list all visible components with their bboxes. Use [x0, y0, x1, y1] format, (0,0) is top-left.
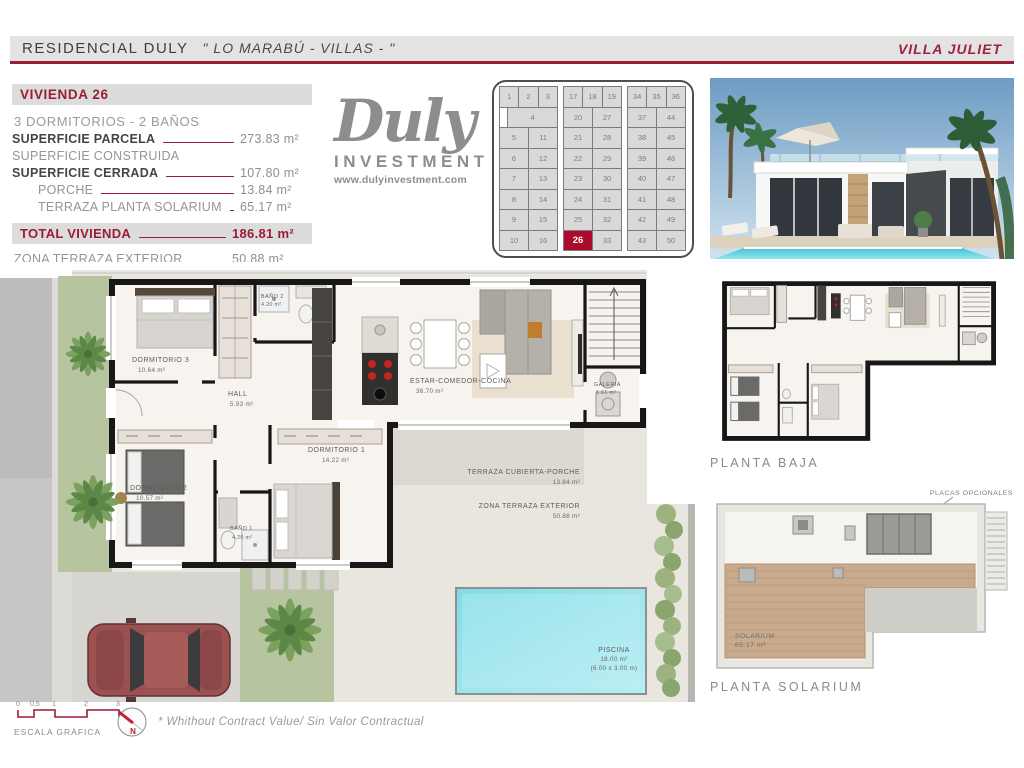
dims-piscina: (6.00 x 3.00 m): [591, 665, 638, 672]
plot-cell-41: 41: [627, 189, 657, 211]
plot-cell-7: 7: [499, 168, 529, 190]
plot-row: 2532: [564, 210, 622, 231]
roof-chimney: [739, 568, 755, 582]
plot-cell-35: 35: [646, 86, 666, 108]
plot-cell-28: 28: [592, 127, 622, 149]
plot-cell-44: 44: [656, 107, 686, 129]
plot-cell-50: 50: [656, 230, 686, 252]
plot-row: 2431: [564, 190, 622, 211]
plot-cell-5: 5: [499, 127, 529, 149]
plot-cell-6: 6: [499, 148, 529, 170]
plot-row: 713: [500, 169, 558, 190]
palm-tree: [66, 332, 111, 377]
plot-cell-27: 27: [592, 107, 622, 129]
dining-table: [411, 320, 470, 368]
surface-rows: SUPERFICIE PARCELA273.83 m²SUPERFICIE CO…: [12, 132, 312, 214]
kitchen-tall-units: [312, 288, 332, 420]
bedrooms-baths: 3 DORMITORIOS - 2 BAÑOS: [14, 114, 312, 129]
plot-cell-39: 39: [627, 148, 657, 170]
plot-cell-47: 47: [656, 168, 686, 190]
info-panel: VIVIENDA 26 3 DORMITORIOS - 2 BAÑOS SUPE…: [12, 84, 312, 269]
planta-solarium-label: PLANTA SOLARIUM: [710, 680, 863, 694]
leader-line: [230, 210, 234, 211]
garden-left: [58, 276, 112, 572]
plot-cell-24: 24: [563, 189, 593, 211]
plot-cell-26: 26: [563, 230, 593, 252]
plot-cell-19: 19: [602, 86, 622, 108]
plot-row: 343536: [628, 87, 686, 108]
swimming-pool: [456, 588, 646, 694]
plot-group-3: 3435363744384539464047414842494350: [628, 87, 686, 251]
disclaimer: * Whithout Contract Value/ Sin Valor Con…: [158, 716, 424, 728]
plot-row: 1016: [500, 231, 558, 252]
surface-row-3: PORCHE13.84 m²: [12, 183, 312, 197]
project-title: RESIDENCIAL DULY: [22, 40, 189, 57]
area-porche: 13.84 m²: [553, 479, 580, 486]
logo-brand: Duly: [334, 94, 484, 149]
plot-cell-46: 46: [656, 148, 686, 170]
surface-value: 273.83 m²: [240, 132, 312, 146]
solarium-label: SOLARIUM: [735, 633, 775, 640]
plot-group-1: 12345116127138149151016: [500, 87, 558, 251]
plot-cell-16: 16: [528, 230, 558, 252]
solarium-stairs: [985, 512, 1007, 590]
planta-solarium-plan: PLACAS OPCIONALES: [705, 484, 1017, 680]
boundary-wall: [688, 504, 695, 702]
solar-panels: [867, 514, 931, 554]
surface-label: PORCHE: [38, 183, 93, 197]
header-bar: RESIDENCIAL DULY " LO MARABÚ - VILLAS - …: [10, 36, 1014, 64]
total-label: TOTAL VIVIENDA: [20, 226, 131, 241]
plot-row: 4249: [628, 210, 686, 231]
plot-row: 915: [500, 210, 558, 231]
label-hall: HALL: [228, 391, 248, 398]
plot-cell-42: 42: [627, 209, 657, 231]
surface-row-2: SUPERFICIE CERRADA107.80 m²: [12, 166, 312, 180]
plot-row: 4350: [628, 231, 686, 252]
plot-cell-49: 49: [656, 209, 686, 231]
plot-row: 2229: [564, 149, 622, 170]
page: RESIDENCIAL DULY " LO MARABÚ - VILLAS - …: [0, 0, 1024, 768]
villa-photo: [710, 78, 1014, 259]
plot-cell-30: 30: [592, 168, 622, 190]
surface-row-0: SUPERFICIE PARCELA273.83 m²: [12, 132, 312, 146]
porch-area: [393, 428, 584, 485]
plot-cell-22: 22: [563, 148, 593, 170]
vivienda-title: VIVIENDA 26: [20, 87, 109, 102]
plot-row: 3744: [628, 108, 686, 129]
plot-cell-18: 18: [582, 86, 602, 108]
plot-cell-43: 43: [627, 230, 657, 252]
main-floor-plan: DORMITORIO 3 10.64 m² BAÑO 2 4.20 m² HAL…: [0, 262, 700, 702]
scale-tick: 0: [16, 701, 20, 708]
placas-opcionales-label: PLACAS OPCIONALES: [930, 490, 1013, 497]
pool: [714, 248, 994, 259]
surface-row-4: TERRAZA PLANTA SOLARIUM65.17 m²: [12, 200, 312, 214]
duly-logo: Duly INVESTMENT www.dulyinvestment.com: [334, 94, 484, 186]
plot-row: 2128: [564, 128, 622, 149]
scale-tick: 1: [52, 701, 56, 708]
surface-value: 107.80 m²: [240, 166, 312, 180]
planta-baja-label: PLANTA BAJA: [710, 456, 819, 470]
label-bano1: BAÑO 1: [230, 525, 253, 532]
surface-label: SUPERFICIE CONSTRUIDA: [12, 149, 179, 163]
label-porche: TERRAZA CUBIERTA-PORCHE: [467, 469, 580, 476]
plot-cell-45: 45: [656, 127, 686, 149]
plot-row: 814: [500, 190, 558, 211]
plot-cell-33: 33: [592, 230, 622, 252]
label-estar: ESTAR-COMEDOR-COCINA: [410, 378, 511, 385]
surface-label: TERRAZA PLANTA SOLARIUM: [38, 200, 222, 214]
label-dormitorio3: DORMITORIO 3: [132, 357, 189, 364]
plot-cell-10: 10: [499, 230, 529, 252]
palm-tree: [259, 599, 322, 662]
plot-cell-32: 32: [592, 209, 622, 231]
wardrobe-corridor: [219, 286, 251, 378]
plot-cell-4: 4: [507, 107, 558, 129]
label-dormitorio1: DORMITORIO 1: [308, 447, 365, 454]
label-galeria: GALERIA: [594, 382, 621, 388]
area-hall: 5.93 m²: [230, 401, 253, 408]
plot-row: 171819: [564, 87, 622, 108]
plot-cell-23: 23: [563, 168, 593, 190]
label-piscina: PISCINA: [598, 647, 630, 654]
kitchen-island: [362, 317, 398, 405]
plot-cell-48: 48: [656, 189, 686, 211]
total-row: TOTAL VIVIENDA 186.81 m²: [12, 223, 312, 244]
area-piscina: 18.00 m²: [600, 656, 627, 663]
solarium-area: 65.17 m²: [735, 642, 766, 649]
plot-row: 2027: [564, 108, 622, 129]
villa-name: VILLA JULIET: [898, 41, 1002, 57]
planta-baja-plan: [710, 272, 1012, 452]
plot-group-2: 1718192027212822292330243125322633: [564, 87, 622, 251]
surface-label: SUPERFICIE PARCELA: [12, 132, 155, 146]
plot-cell-20: 20: [563, 107, 593, 129]
plot-cell-25: 25: [563, 209, 593, 231]
plot-cell-15: 15: [528, 209, 558, 231]
bed-dormitorio3: [135, 288, 215, 348]
leader-line: [163, 142, 234, 143]
plot-cell-1: 1: [499, 86, 519, 108]
plot-cell-11: 11: [528, 127, 558, 149]
plot-row: 123: [500, 87, 558, 108]
scale-tick: 2: [84, 701, 88, 708]
surface-value: 65.17 m²: [240, 200, 312, 214]
plot-row: 2330: [564, 169, 622, 190]
header-title: RESIDENCIAL DULY " LO MARABÚ - VILLAS - …: [22, 40, 395, 57]
area-galeria: 1.61 m²: [596, 390, 616, 396]
plot-cell-21: 21: [563, 127, 593, 149]
plot-cell-36: 36: [666, 86, 686, 108]
plot-row: 4047: [628, 169, 686, 190]
scale-label: ESCALA GRÁFICA: [14, 727, 101, 737]
plot-cell-40: 40: [627, 168, 657, 190]
plot-cell-2: 2: [518, 86, 538, 108]
plot-cell-9: 9: [499, 209, 529, 231]
plot-row: 511: [500, 128, 558, 149]
area-dormitorio3: 10.64 m²: [138, 367, 165, 374]
plot-cell-12: 12: [528, 148, 558, 170]
plot-cell-31: 31: [592, 189, 622, 211]
car: [88, 618, 230, 702]
scale-tick: 0,5: [30, 701, 40, 708]
vivienda-title-bar: VIVIENDA 26: [12, 84, 312, 105]
plot-cell-14: 14: [528, 189, 558, 211]
area-bano1: 4.20 m²: [232, 535, 252, 541]
plot-grid: 1234511612713814915101617181920272128222…: [492, 80, 694, 258]
lower-roof: [865, 588, 977, 632]
surface-value: 13.84 m²: [240, 183, 312, 197]
label-dormitorio2: DORMITORIO 2: [130, 485, 187, 492]
plot-row: 3946: [628, 149, 686, 170]
surface-row-1: SUPERFICIE CONSTRUIDA: [12, 149, 312, 163]
leader-line: [101, 193, 234, 194]
total-value: 186.81 m²: [232, 226, 304, 241]
plot-cell-34: 34: [627, 86, 647, 108]
plot-cell-13: 13: [528, 168, 558, 190]
plot-row: 2633: [564, 231, 622, 252]
area-bano2: 4.20 m²: [261, 302, 281, 308]
logo-website: www.dulyinvestment.com: [334, 174, 484, 186]
area-dormitorio2: 10.57 m²: [136, 495, 163, 502]
leader-line: [166, 176, 234, 177]
area-dormitorio1: 14.22 m²: [322, 457, 349, 464]
label-bano2: BAÑO 2: [261, 293, 284, 300]
plot-row: 612: [500, 149, 558, 170]
project-subtitle: " LO MARABÚ - VILLAS - ": [203, 40, 396, 56]
plot-cell-8: 8: [499, 189, 529, 211]
plot-row: 4148: [628, 190, 686, 211]
plot-cell-17: 17: [563, 86, 583, 108]
plot-cell-37: 37: [627, 107, 657, 129]
plot-row: 4: [500, 108, 558, 129]
plot-cell-38: 38: [627, 127, 657, 149]
plot-cell-3: 3: [538, 86, 558, 108]
north-letter: N: [130, 727, 136, 736]
surface-label: SUPERFICIE CERRADA: [12, 166, 158, 180]
total-leader-line: [139, 237, 226, 238]
area-estar: 36.70 m²: [416, 388, 443, 395]
palm-tree: [66, 475, 120, 529]
area-terraza-exterior: 50.88 m²: [553, 513, 580, 520]
label-terraza-exterior: ZONA TERRAZA EXTERIOR: [479, 503, 580, 510]
logo-division: INVESTMENT: [334, 152, 484, 172]
plot-row: 3845: [628, 128, 686, 149]
north-arrow: N: [112, 702, 152, 742]
plot-cell-29: 29: [592, 148, 622, 170]
